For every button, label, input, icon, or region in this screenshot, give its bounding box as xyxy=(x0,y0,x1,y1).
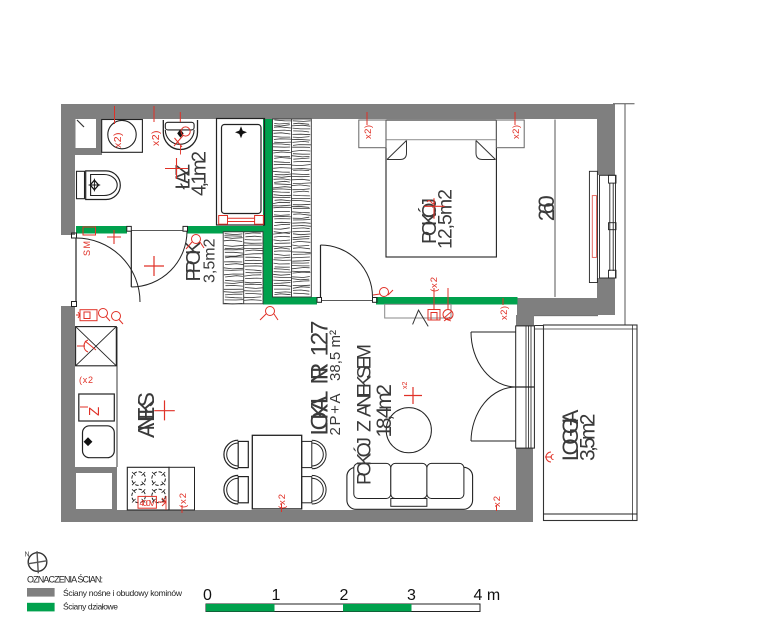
svg-text:18,4m2: 18,4m2 xyxy=(373,384,396,438)
svg-text:4,1m2: 4,1m2 xyxy=(189,151,211,196)
svg-text:x2): x2) xyxy=(363,125,374,139)
svg-text:x2): x2) xyxy=(511,125,522,139)
svg-text:38,5 m²: 38,5 m² xyxy=(327,330,344,381)
svg-text:3,5m2: 3,5m2 xyxy=(202,238,219,283)
svg-text:Ściany nośne i obudowy kominów: Ściany nośne i obudowy kominów xyxy=(63,587,183,598)
svg-text:Z: Z xyxy=(86,407,103,416)
svg-text:2: 2 xyxy=(340,587,349,604)
svg-text:x2: x2 xyxy=(402,382,409,390)
svg-text:x2): x2) xyxy=(499,306,510,320)
svg-text:12,5m2: 12,5m2 xyxy=(435,189,457,249)
svg-text:SM: SM xyxy=(82,241,92,256)
svg-text:OZNACZENIA ŚCIAN:: OZNACZENIA ŚCIAN: xyxy=(27,574,103,585)
svg-text:Ściany działowe: Ściany działowe xyxy=(63,601,118,612)
svg-text:3,5m2: 3,5m2 xyxy=(577,414,600,462)
svg-text:(x2: (x2 xyxy=(79,375,93,385)
svg-text:(x2: (x2 xyxy=(277,494,288,509)
svg-text:1: 1 xyxy=(272,587,281,604)
svg-text:N: N xyxy=(25,552,30,559)
svg-text:POKÓJ: POKÓJ xyxy=(353,437,376,485)
svg-text:2P+A: 2P+A xyxy=(327,394,344,436)
svg-text:260: 260 xyxy=(534,195,559,221)
svg-text:(x2: (x2 xyxy=(178,493,189,508)
svg-text:ANEKS: ANEKS xyxy=(133,392,159,438)
svg-text:x2): x2) xyxy=(112,133,124,149)
svg-text:x2): x2) xyxy=(150,131,162,147)
svg-text:0: 0 xyxy=(203,587,212,604)
svg-text:3: 3 xyxy=(407,587,416,604)
svg-text:x2: x2 xyxy=(492,496,503,507)
svg-text:400V: 400V xyxy=(140,498,156,508)
svg-text:4 m: 4 m xyxy=(474,587,501,604)
